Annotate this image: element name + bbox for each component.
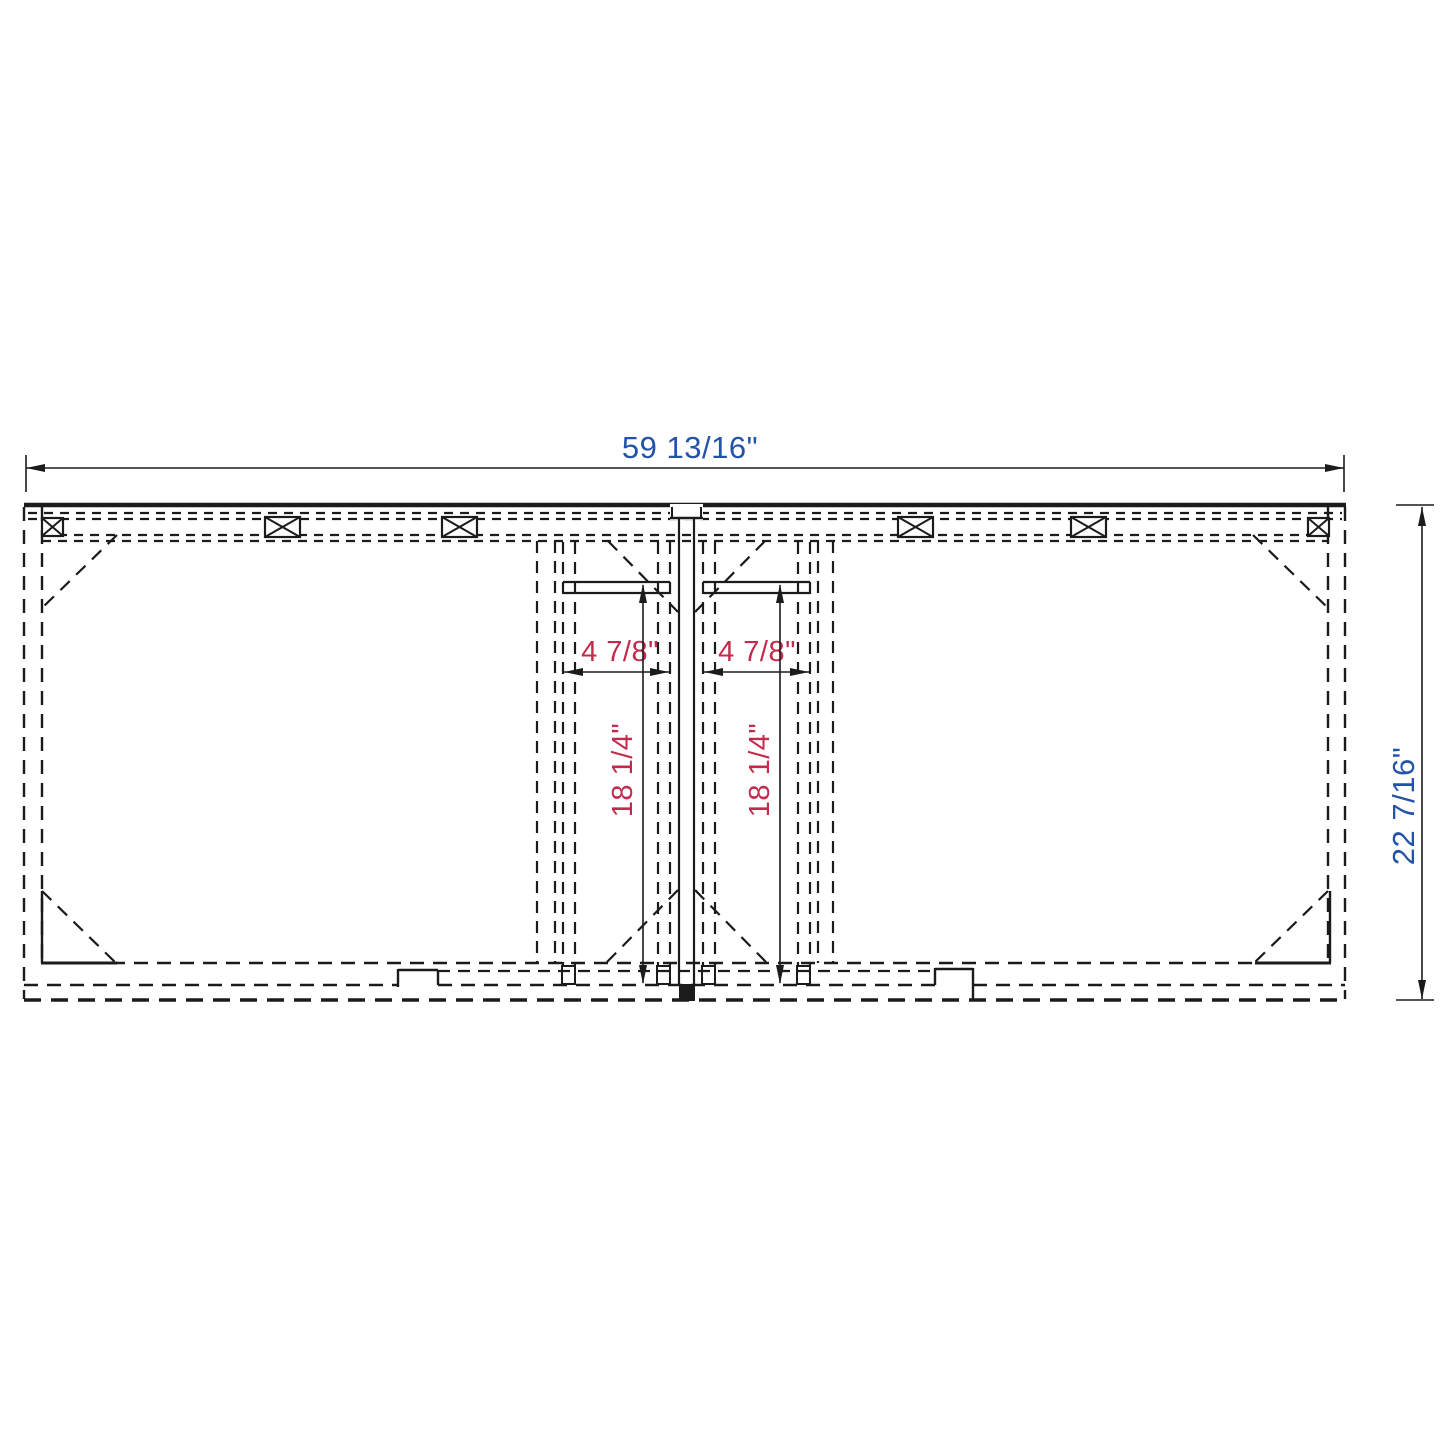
x-bracket-icon bbox=[42, 518, 63, 536]
arrow-right-icon bbox=[1325, 464, 1344, 472]
arrow-down-icon bbox=[639, 965, 647, 984]
overall-width-label: 59 13/16" bbox=[622, 430, 758, 465]
drawing-page: 59 13/16" 22 7/16" 4 7/8" 4 7/8" bbox=[0, 0, 1445, 1445]
partitions-and-slide-channels bbox=[438, 541, 935, 971]
left-opening-width-label: 4 7/8" bbox=[581, 636, 659, 668]
left-opening-depth-label: 18 1/4" bbox=[607, 723, 639, 817]
dim-right-opening-width: 4 7/8" bbox=[704, 636, 809, 676]
corner-braces bbox=[42, 535, 1328, 963]
arrow-down-icon bbox=[776, 965, 784, 984]
x-bracket-icon bbox=[442, 517, 477, 537]
arrow-right-icon bbox=[650, 668, 669, 676]
dim-left-opening-width: 4 7/8" bbox=[564, 636, 669, 676]
arrow-left-icon bbox=[26, 464, 45, 472]
arrow-left-icon bbox=[564, 668, 583, 676]
dim-overall-depth: 22 7/16" bbox=[1386, 505, 1434, 1000]
arrow-left-icon bbox=[704, 668, 723, 676]
right-opening-depth-label: 18 1/4" bbox=[744, 723, 776, 817]
technical-drawing: 59 13/16" 22 7/16" 4 7/8" 4 7/8" bbox=[0, 0, 1445, 1445]
overall-depth-label: 22 7/16" bbox=[1386, 747, 1421, 865]
dim-overall-width: 59 13/16" bbox=[26, 430, 1344, 492]
x-bracket-icon bbox=[898, 517, 933, 537]
arrow-right-icon bbox=[790, 668, 809, 676]
center-stile bbox=[670, 504, 703, 1001]
drawing-root: 59 13/16" 22 7/16" 4 7/8" 4 7/8" bbox=[24, 430, 1434, 1001]
right-opening-width-label: 4 7/8" bbox=[718, 636, 796, 668]
arrow-up-icon bbox=[1418, 507, 1426, 526]
arrow-down-icon bbox=[1418, 980, 1426, 999]
side-panels-and-bottom bbox=[24, 507, 1345, 999]
x-bracket-icon bbox=[1308, 518, 1329, 536]
x-bracket-icon bbox=[265, 517, 300, 537]
corner-brace-legs bbox=[41, 891, 1331, 963]
x-bracket-icon bbox=[1071, 517, 1106, 537]
